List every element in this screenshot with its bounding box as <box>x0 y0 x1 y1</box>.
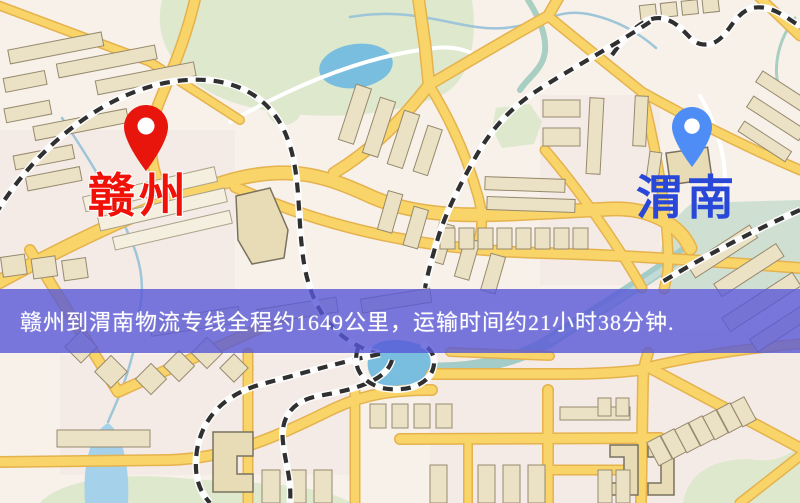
ganzhou-pin-icon[interactable] <box>124 105 168 171</box>
weinan-label: 渭南 <box>636 176 738 223</box>
ganzhou-label: 赣州 <box>88 174 190 221</box>
weinan-pin-icon[interactable] <box>671 107 713 167</box>
route-info-banner: 赣州到渭南物流专线全程约1649公里，运输时间约21小时38分钟. <box>0 289 800 353</box>
route-info-text: 赣州到渭南物流专线全程约1649公里，运输时间约21小时38分钟. <box>0 305 675 337</box>
map-artwork <box>0 0 800 503</box>
map-canvas[interactable]: 赣州 渭南 赣州到渭南物流专线全程约1649公里，运输时间约21小时38分钟. <box>0 0 800 503</box>
